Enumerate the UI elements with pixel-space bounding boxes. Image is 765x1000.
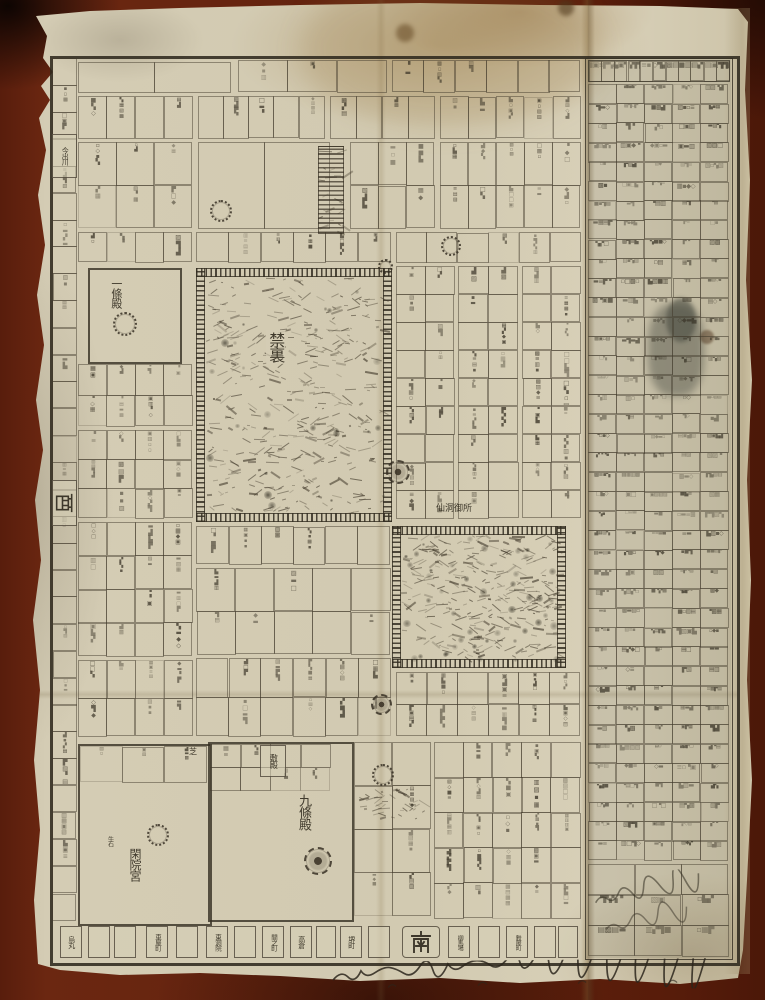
plot-cell: ▛▣▤▞ <box>396 704 427 737</box>
illegible-text: ▤▚▩ <box>679 803 694 810</box>
plot-cell <box>354 829 393 873</box>
drawing-stroke <box>318 216 323 219</box>
plot-cell: ■▜ <box>644 782 673 802</box>
plot-cell: ▚■▣ <box>493 777 523 813</box>
drawing-stroke <box>319 151 332 152</box>
plot-cell: ▟◇▞▜ <box>135 489 164 519</box>
plot-cell: ▥▨▪▦ <box>521 777 551 813</box>
plot-cell: ▚▝▣▫ <box>463 813 493 849</box>
illegible-text: ≡▫▝▣ <box>677 764 696 771</box>
illegible-text: ▨≡▜ <box>624 377 637 383</box>
drawing-stroke <box>330 220 334 221</box>
plot-cell: □◇□ <box>78 522 107 556</box>
plot-cell <box>617 434 646 454</box>
illegible-text: ▛▝▚≡ <box>652 182 665 187</box>
illegible-text: ▟▧▟▚ <box>594 144 610 150</box>
plot-cell: ▥▦▣▧ <box>52 812 77 840</box>
tree-mark <box>458 637 465 644</box>
tree-mark <box>426 598 431 603</box>
plot-cell: ▛▧ <box>672 666 701 686</box>
illegible-text: ▤◆▬▫ <box>651 435 665 440</box>
illegible-text: ▤≡▟ <box>625 531 635 536</box>
illegible-text: ▬▫■ <box>389 143 396 166</box>
plot-cell <box>357 526 390 565</box>
illegible-text: ■▜ <box>655 783 662 788</box>
illegible-text: ■▥ <box>679 62 691 69</box>
illegible-text: ▣▟ <box>372 233 377 242</box>
plot-cell: ▚▤▛▙ <box>644 628 673 648</box>
plot-cell: ▩≡▥▪ <box>522 350 552 379</box>
illegible-text: ◆≡ <box>533 884 538 895</box>
illegible-text: ▩▚ <box>501 233 507 244</box>
illegible-text: ▟▣ <box>626 570 635 576</box>
compass-south: 南 <box>402 926 440 958</box>
plot-cell: ≡▦▩▪ <box>551 294 581 323</box>
plot-cell: ▣▨▧▨ <box>644 492 673 512</box>
drawing-stroke <box>319 225 329 230</box>
illegible-text: ▙□□▣ <box>507 186 513 208</box>
illegible-text: ▛▣▤▞ <box>408 705 414 727</box>
illegible-text: ▣▞◇ <box>681 85 693 91</box>
plot-cell <box>488 294 519 323</box>
plot-cell: ▨▩ <box>700 239 729 259</box>
plot-cell: ▙▬ <box>468 97 497 140</box>
handwritten-annotation <box>328 958 748 992</box>
plot-cell: ▝▫▪◇ <box>588 433 617 453</box>
drawing-stroke <box>390 794 396 799</box>
illegible-text: ▪▟ <box>710 415 718 422</box>
plot-cell: ▫▥ <box>588 123 617 143</box>
illegible-text: ▛▚■▦ <box>307 659 312 681</box>
plot-cell: ▩▨□□ <box>550 777 580 813</box>
plot-cell: ▬▥▙ <box>616 297 645 317</box>
illegible-text: ▟▟▛□ <box>680 745 693 750</box>
illegible-text: ▨▜▟ <box>175 233 182 256</box>
illegible-text: ▫◇▪▚ <box>95 143 101 165</box>
plot-cell: ▟▙▟▞ <box>616 84 645 104</box>
illegible-text: ▚▪▩▪ <box>306 528 311 550</box>
illegible-text: ▞◇▧ <box>682 823 692 828</box>
illegible-text: ▧▪▩ <box>408 295 414 312</box>
plot-cell: ▚▞□ <box>588 240 617 260</box>
illegible-text: ▨▬▛▜ <box>274 659 280 681</box>
illegible-text: ▤▤▣▝ <box>704 62 717 69</box>
ichijo-den-label: 一條殿 <box>110 278 122 308</box>
plot-cell <box>408 96 435 139</box>
plot-cell: ▤▜ <box>672 200 701 220</box>
plot-cell: ◆≡ <box>521 883 551 919</box>
illegible-text: ▫▙▦ <box>451 143 457 160</box>
illegible-text: ▜◇ <box>683 414 690 419</box>
plot-cell: ■▙≡ <box>672 491 701 511</box>
illegible-text: ▚▝ <box>118 233 125 246</box>
illegible-text: ▞▜▙ <box>710 337 719 342</box>
illegible-text: ▥▝▝▩ <box>532 705 537 723</box>
illegible-text: ▧◇■≡ <box>446 779 451 801</box>
plot-cell: ◇▜◆ <box>78 698 107 737</box>
tree-mark <box>330 499 334 503</box>
tree-mark <box>522 628 528 634</box>
plot-cell <box>548 60 580 93</box>
plot-cell: ▟▣ <box>616 569 645 589</box>
illegible-text: ≡▪ <box>641 62 651 69</box>
plot-cell <box>106 589 135 623</box>
plot-cell: □▛▦▧ <box>644 355 673 375</box>
drawing-stroke <box>338 223 341 225</box>
family-crest-mark <box>441 236 461 256</box>
plot-cell: ▩▜≡▙ <box>616 239 645 259</box>
plot-cell: ▧▝▦ <box>116 185 155 229</box>
illegible-text: ■▫▨▤ <box>677 609 695 615</box>
illegible-text: ▜▥▦▧ <box>706 706 724 712</box>
plot-cell: ▬▟▙▛ <box>135 522 164 556</box>
illegible-text: ▥▨▪▦ <box>533 778 540 808</box>
illegible-text: ▙▫ <box>656 647 663 652</box>
street-name-cell: 間之町 <box>262 926 284 958</box>
plot-cell: ▧◆ <box>644 162 673 182</box>
plot-cell: ▬▪ <box>588 608 617 628</box>
illegible-text: ▩▪ <box>598 182 607 189</box>
plot-cell: ▜▥▦▧ <box>700 705 729 725</box>
plot-cell: ▝▤▬▩ <box>106 395 135 427</box>
plot-cell: ▚▨▞ <box>396 406 426 435</box>
plot-cell <box>644 472 673 492</box>
tree-mark <box>548 542 553 547</box>
plot-cell: ▙□ <box>588 259 617 279</box>
illegible-text: ■▩▟ <box>651 105 665 111</box>
illegible-text: ▞▚ <box>627 803 634 808</box>
illegible-text: ▫▛▚▪ <box>601 62 614 69</box>
plot-cell: ▟▙▚ <box>426 704 457 737</box>
plot-cell: ▨▜ <box>455 60 487 93</box>
shikiden-cell: 敷殿 <box>260 745 286 777</box>
plot-cell: ■■▨▛ <box>700 549 729 569</box>
illegible-text: ▚▦▧▩ <box>118 97 123 119</box>
plot-cell <box>135 232 164 263</box>
illegible-text: ▝▝▣ <box>146 590 152 607</box>
plot-cell <box>434 742 464 778</box>
plot-cell: ▝≡ <box>78 430 107 460</box>
illegible-text: ▟▙▚ <box>439 705 446 728</box>
plot-cell: ▣▫▧▨ <box>524 97 553 140</box>
illegible-text: ▪◆▚ <box>653 318 664 324</box>
illegible-text: ▟□▛ <box>242 659 248 676</box>
plot-cell <box>52 193 77 221</box>
plot-cell: ▞▝ <box>700 821 729 841</box>
plot-cell: ▜▜ <box>673 278 702 298</box>
plot-cell: ▙▨▧ <box>588 743 617 763</box>
palace-wall <box>383 268 392 522</box>
illegible-text: ▙≡ <box>654 706 662 712</box>
plot-cell: ▞▞▥▪ <box>551 434 581 463</box>
plot-cell: ▙◇ <box>701 763 730 783</box>
illegible-text: □▛▦▧ <box>651 356 666 361</box>
illegible-text: ▜▟ <box>710 725 719 732</box>
plot-cell: ◆≡▪ <box>588 705 617 725</box>
plot-cell: ▦▥▥▣ <box>551 813 581 849</box>
city-block: ▧▟▙▬▫■■■▙▦◆ <box>350 142 434 228</box>
plot-cell: ▦▬▤▪ <box>588 550 617 570</box>
illegible-text: □▚■ <box>597 803 609 808</box>
illegible-text: ▟◆▚ <box>479 143 485 160</box>
plot-cell: □◇◆ <box>588 666 617 686</box>
illegible-text: ◆▟▫ <box>563 186 569 206</box>
drawing-stroke <box>364 808 367 810</box>
illegible-text: ◆▟ <box>119 365 124 374</box>
plot-cell: ▣◇■ <box>163 460 192 490</box>
illegible-text: ▚▪ <box>599 512 605 517</box>
illegible-text: ▤□ <box>681 647 691 653</box>
illegible-text: ▩▫▧▚ <box>436 61 442 83</box>
illegible-text: ▞▚ <box>312 768 318 779</box>
tree-mark <box>373 358 380 365</box>
plot-cell: ▨▬□ <box>274 568 313 612</box>
plot-cell: ▞▤▨ <box>392 872 431 916</box>
illegible-text: ▚▟■ <box>597 784 608 789</box>
plot-cell: ▙▦▧▧ <box>616 744 645 764</box>
plot-cell: ▪▬ <box>458 294 489 323</box>
illegible-text: ▬▧▦ <box>175 556 181 573</box>
garden-trees-drawing <box>401 535 557 659</box>
plot-cell: ■◆◆▞ <box>645 337 674 357</box>
plot-cell: ▤▤◇ <box>588 375 617 395</box>
illegible-text: ■◆▞▚ <box>623 706 638 711</box>
illegible-text: ▧▛ <box>710 803 719 809</box>
plot-cell: ▤◇ <box>644 744 673 764</box>
tree-mark <box>355 290 359 294</box>
city-block: ▙▬▟▥▜▤◆▬▨▬□▪▬ <box>196 568 390 654</box>
plot-cell <box>78 590 107 624</box>
plot-cell <box>198 142 265 229</box>
plot-cell: ▙▨▪◇ <box>700 530 729 550</box>
plot-cell <box>52 596 77 624</box>
plot-cell: ≡▤▨ <box>440 185 469 229</box>
plot-cell: ▝▣▙ <box>522 406 552 435</box>
illegible-text: ▫◇ <box>683 395 691 402</box>
illegible-text: ▝▩ <box>710 201 718 206</box>
illegible-text: ▞▦ <box>94 186 100 199</box>
tree-mark <box>467 536 473 542</box>
plot-cell: ◆▙ <box>458 378 489 407</box>
plot-cell: ▧▞ <box>644 724 673 744</box>
tree-mark <box>407 562 413 568</box>
drawing-stroke <box>413 809 416 811</box>
illegible-text: ▥▟▨ <box>707 842 721 848</box>
plot-cell <box>52 381 77 409</box>
plot-cell: ▜▩ <box>588 646 617 666</box>
plot-cell: ▝▬ <box>392 60 424 93</box>
illegible-text: ▣▤▩ <box>652 822 664 827</box>
illegible-text: ◆▪▥ <box>260 61 266 81</box>
plot-cell <box>378 186 407 230</box>
illegible-text: ▪▬ <box>368 613 373 624</box>
illegible-text: ▚■ <box>597 415 606 421</box>
illegible-text: ▚▩ <box>625 725 635 732</box>
tree-mark <box>549 598 554 603</box>
plot-cell <box>488 434 519 463</box>
illegible-text: ▦▣≡ <box>589 62 602 69</box>
illegible-text: ▙◇ <box>534 323 540 334</box>
tree-mark <box>242 366 246 370</box>
plot-cell: ▪■▜ <box>672 549 701 569</box>
tree-mark <box>480 588 488 596</box>
plot-cell: □▣□▙ <box>616 182 645 202</box>
tree-mark <box>543 613 547 617</box>
illegible-text: ▤▨ <box>681 453 690 459</box>
illegible-text: ▬▥□▛ <box>175 590 180 612</box>
illegible-text: ▚▝▣▫ <box>475 814 480 836</box>
illegible-text: ▙▬▟▥ <box>213 569 218 591</box>
illegible-text: ▧≡▪ <box>624 628 635 633</box>
plot-cell: ▩◆ <box>700 588 729 608</box>
plot-cell: ▙▣≡ <box>52 839 77 867</box>
illegible-text: ▤◇▝ <box>708 299 721 305</box>
plot-cell: ≡◆▜ <box>396 490 426 519</box>
plot-cell: □▩▫ <box>524 142 553 186</box>
illegible-text: ▟▛ <box>438 407 444 418</box>
illegible-text: ▣▥▫▫ <box>146 431 152 453</box>
plot-cell: ▧▛ <box>701 802 730 822</box>
illegible-text: ▦▣ <box>89 365 95 378</box>
plot-cell: ▞▚ <box>300 767 331 791</box>
plot-cell: ▧▩ <box>261 526 294 565</box>
illegible-text: ▝▜ <box>147 365 152 374</box>
plot-cell: ▣◇▜ <box>522 462 552 491</box>
illegible-text: □▣□▙ <box>622 183 638 188</box>
illegible-text: ▝▛◆ <box>653 551 664 557</box>
tree-mark <box>264 491 272 499</box>
illegible-text: □▚ <box>479 186 486 199</box>
illegible-text: ◆▣▫▬ <box>650 143 667 149</box>
illegible-text: ▨▜ <box>468 61 474 72</box>
plot-cell: ▤▞◆□ <box>616 646 645 666</box>
plot-cell: ▥▤▞▤ <box>690 61 703 82</box>
plot-cell: □▪▬ <box>52 678 77 706</box>
city-block: ▧◇■≡▤▛▦▥▟▞▛▜▞◆▙▬■▛◇▟▧▚▝▣▫▫■▜▚▥▝▛▞▚■▣▫◇▪◇… <box>434 742 580 918</box>
illegible-text: ▪□▬▜ <box>241 698 247 724</box>
plot-cell <box>396 322 426 351</box>
illegible-text: ▬▨▚ <box>708 124 721 130</box>
plot-cell <box>274 611 313 655</box>
plot-cell: ▟▫▞ <box>549 672 580 705</box>
illegible-text: ▨▜≡ <box>680 163 692 168</box>
plot-cell: ▩▜▫▛ <box>617 103 646 123</box>
illegible-text: ■■▨▛ <box>707 550 722 555</box>
plot-cell: ▝▛◆ <box>644 550 673 570</box>
tree-mark <box>523 554 528 559</box>
drawing-stroke <box>319 179 325 181</box>
illegible-text: ▛◇▟▧ <box>475 778 480 800</box>
illegible-text: ≡▬ <box>682 531 692 537</box>
plot-cell: ▙▣▚ <box>614 61 627 82</box>
tree-mark <box>449 562 455 568</box>
plot-cell: ▩≡▪▚ <box>588 472 617 492</box>
illegible-text: ▣▫▧▨ <box>536 98 542 120</box>
city-block: ▟▨▪▬▚≡▤▪◆▙▪≡▞▙▨▞▚■▥≡▩▣▟▩▦▞◆▣▫▩▟▛▞▞ <box>458 266 518 518</box>
illegible-text: ◇≡ <box>625 667 634 673</box>
illegible-text: ▧▞ <box>655 725 662 730</box>
illegible-text: ▙▫▣▞ <box>507 97 513 119</box>
plot-cell: ▚▧▝□ <box>644 394 673 414</box>
illegible-text: ▩▨◆≡ <box>534 379 540 401</box>
plot-cell: ▩▤▩▦ <box>492 883 522 919</box>
city-block: ▧▪▙▬▙▫▣▞▣▫▧▨▟▨◇▟ <box>440 96 580 138</box>
illegible-text: ▜▤ <box>213 612 219 623</box>
plot-cell: ▩▩ <box>672 297 701 317</box>
illegible-text: ▙▙□▬ <box>563 884 569 906</box>
illegible-text: ▩▝▣■ <box>592 298 613 305</box>
drawing-stroke <box>324 177 336 179</box>
plot-cell: ▩▪ <box>588 181 617 201</box>
illegible-text: ▩▣▫▨ <box>594 337 610 342</box>
tree-mark <box>444 651 449 656</box>
tree-mark <box>525 548 529 552</box>
plot-cell: ▙▝▨ <box>644 452 673 472</box>
plot-cell: ▨▬ <box>135 555 164 589</box>
illegible-text: ▦▝≡▪ <box>595 628 610 633</box>
illegible-text: ■▙≡ <box>680 492 692 497</box>
plot-cell: □▝■▛ <box>196 526 229 565</box>
illegible-text: ▩◆ <box>710 589 719 595</box>
tree-mark <box>485 639 489 643</box>
plot-cell: ▫▙▦ <box>440 142 469 186</box>
illegible-text: ▣▥▝◇ <box>147 396 153 418</box>
plot-cell: □▙■ <box>163 430 192 460</box>
plot-cell: ▚▩◇▧ <box>326 658 359 698</box>
plot-cell: ▬◆■ <box>354 872 393 916</box>
illegible-text: ▝▤▥ <box>651 201 666 208</box>
plot-cell: ▞▚▪ <box>106 556 135 590</box>
illegible-text: ▝▬ <box>404 61 411 76</box>
street-name-cell: 麩屋町 <box>506 926 528 958</box>
illegible-text: □▙◇ <box>596 492 608 498</box>
illegible-text: ◇▬ <box>654 764 663 770</box>
plot-cell: ▫◆▪ <box>700 628 729 648</box>
illegible-text: ◆■≡ <box>624 764 637 770</box>
plot-cell: ▬▬ <box>700 646 729 666</box>
illegible-text: ▬■ <box>654 512 663 517</box>
plot-cell <box>644 608 673 628</box>
illegible-text: ▬▬ <box>709 647 719 653</box>
plot-cell: ▞▫ <box>645 123 674 143</box>
plot-cell: ◇▬ <box>644 763 673 783</box>
tree-mark <box>333 430 340 437</box>
illegible-text: ≡▥▝ <box>275 233 280 247</box>
plot-cell: ▛▞ <box>492 742 522 778</box>
illegible-text: ▥▪▚▨ <box>622 259 638 265</box>
tree-mark <box>264 472 267 475</box>
plot-cell: ▪□▬▜ <box>228 697 261 737</box>
plot-cell <box>558 926 578 958</box>
plot-cell: ▧▫▚▧ <box>700 162 729 182</box>
illegible-text: ▣▟▣≡ <box>501 673 508 699</box>
plot-cell: ▪▬ <box>351 612 390 656</box>
plot-cell: ▙▥▬ <box>672 782 701 802</box>
illegible-text: ▚■▣ <box>505 778 511 798</box>
illegible-text: ▟▦▨▚ <box>594 531 609 536</box>
plot-cell: ▚≡▤▪ <box>458 350 489 379</box>
illegible-text: ▪▣▚ <box>533 743 539 760</box>
illegible-text: ▞▝▝▪ <box>596 453 609 458</box>
plot-cell: ▬▥▜■ <box>488 704 519 737</box>
street-name: 間之町 <box>269 934 276 951</box>
plot-cell: ▣▪ <box>396 672 427 705</box>
illegible-text: ▪▫▩ <box>62 86 68 103</box>
plot-cell <box>392 742 431 786</box>
plot-cell: ▫■▜▚ <box>464 847 494 883</box>
illegible-text: ▜▜ <box>684 279 690 284</box>
plot-cell: ▝■ <box>425 378 455 407</box>
